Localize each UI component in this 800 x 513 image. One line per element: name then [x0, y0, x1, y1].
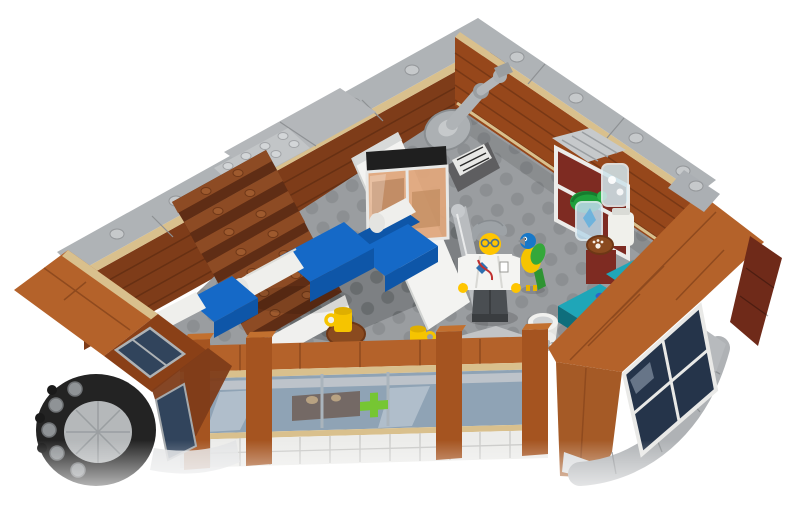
scene-illustration [0, 0, 800, 513]
facade-pillar [522, 323, 552, 456]
minifig-hand [458, 283, 468, 293]
id-badge [500, 262, 508, 272]
interior-through-glass [292, 391, 360, 421]
shelf-pedestal [586, 250, 616, 284]
canister [602, 164, 628, 206]
lego-product-photo [0, 0, 800, 513]
photo-fade [0, 440, 800, 513]
facade-pillar [436, 325, 466, 460]
minifig-hand [511, 283, 521, 293]
